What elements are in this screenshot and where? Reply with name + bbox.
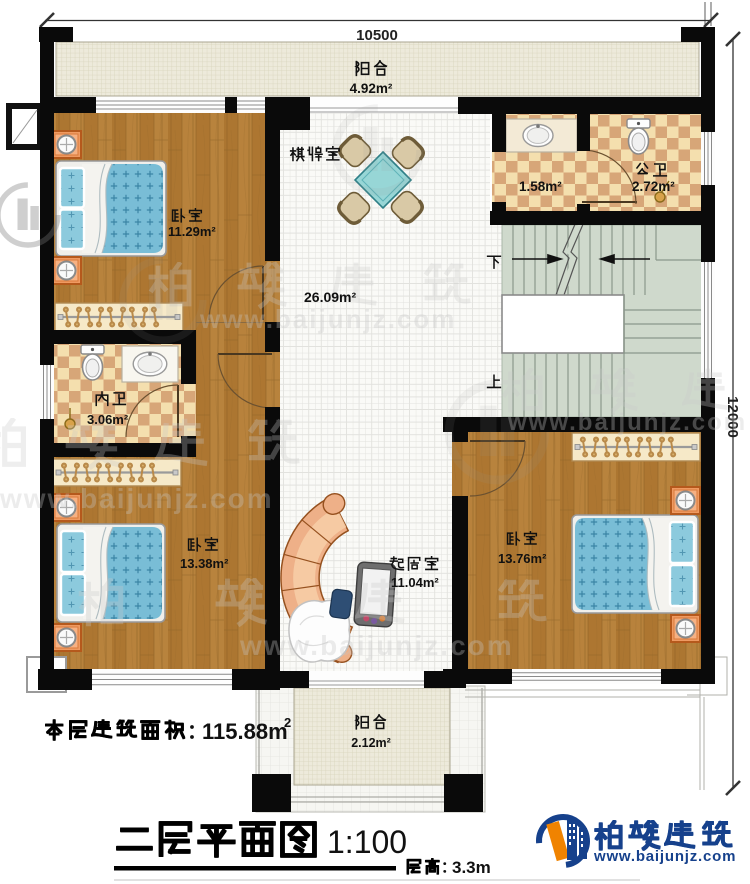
svg-text:www.baijunjz.com: www.baijunjz.com xyxy=(199,304,456,334)
svg-text:2.12m²: 2.12m² xyxy=(351,736,391,750)
svg-text:3.06m²: 3.06m² xyxy=(87,412,129,427)
svg-text:13.38m²: 13.38m² xyxy=(180,556,229,571)
svg-text:www.baijunjz.com: www.baijunjz.com xyxy=(0,483,274,514)
svg-text:13.76m²: 13.76m² xyxy=(498,551,547,566)
svg-text:11.04m²: 11.04m² xyxy=(391,575,439,590)
svg-text:www.baijunjz.com: www.baijunjz.com xyxy=(507,409,747,436)
svg-text:11.29m²: 11.29m² xyxy=(168,224,216,239)
svg-text:4.92m²: 4.92m² xyxy=(350,81,393,96)
svg-text:3.3m: 3.3m xyxy=(452,858,491,877)
svg-text:115.88m: 115.88m xyxy=(202,719,288,744)
svg-text:www.baijunjz.com: www.baijunjz.com xyxy=(239,630,514,661)
svg-text:1.58m²: 1.58m² xyxy=(519,179,562,194)
svg-text:2.72m²: 2.72m² xyxy=(632,179,675,194)
svg-text:10500: 10500 xyxy=(356,27,398,44)
svg-text:www.baijunjz.com: www.baijunjz.com xyxy=(593,848,736,865)
svg-text:26.09m²: 26.09m² xyxy=(304,289,356,305)
svg-text:1:100: 1:100 xyxy=(327,824,407,860)
svg-text:2: 2 xyxy=(284,715,291,730)
